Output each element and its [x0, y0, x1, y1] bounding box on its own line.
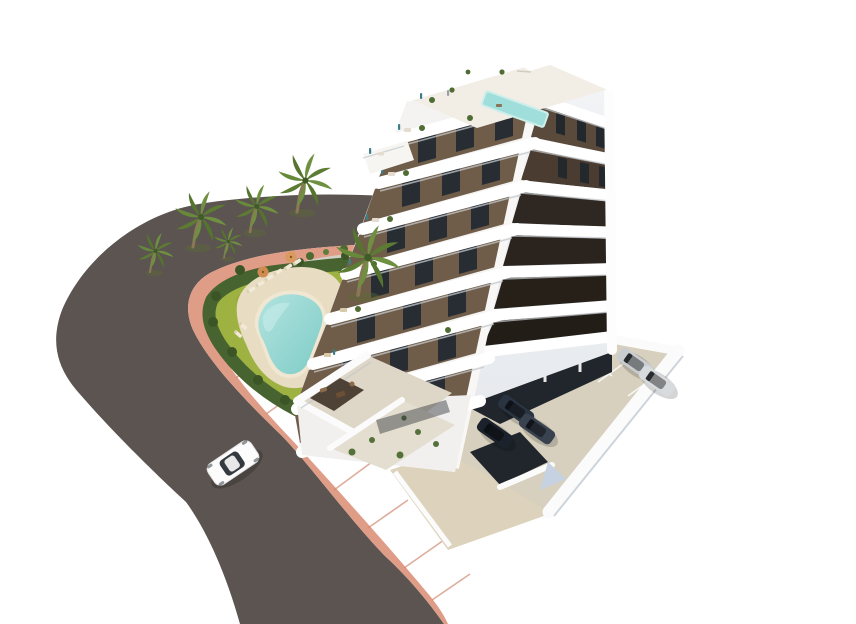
right-recess-dark	[503, 235, 612, 266]
scene-canvas	[0, 0, 856, 624]
right-edge-pillar	[609, 87, 612, 350]
bulkhead-shadow	[517, 71, 531, 72]
architectural-render	[0, 0, 856, 624]
